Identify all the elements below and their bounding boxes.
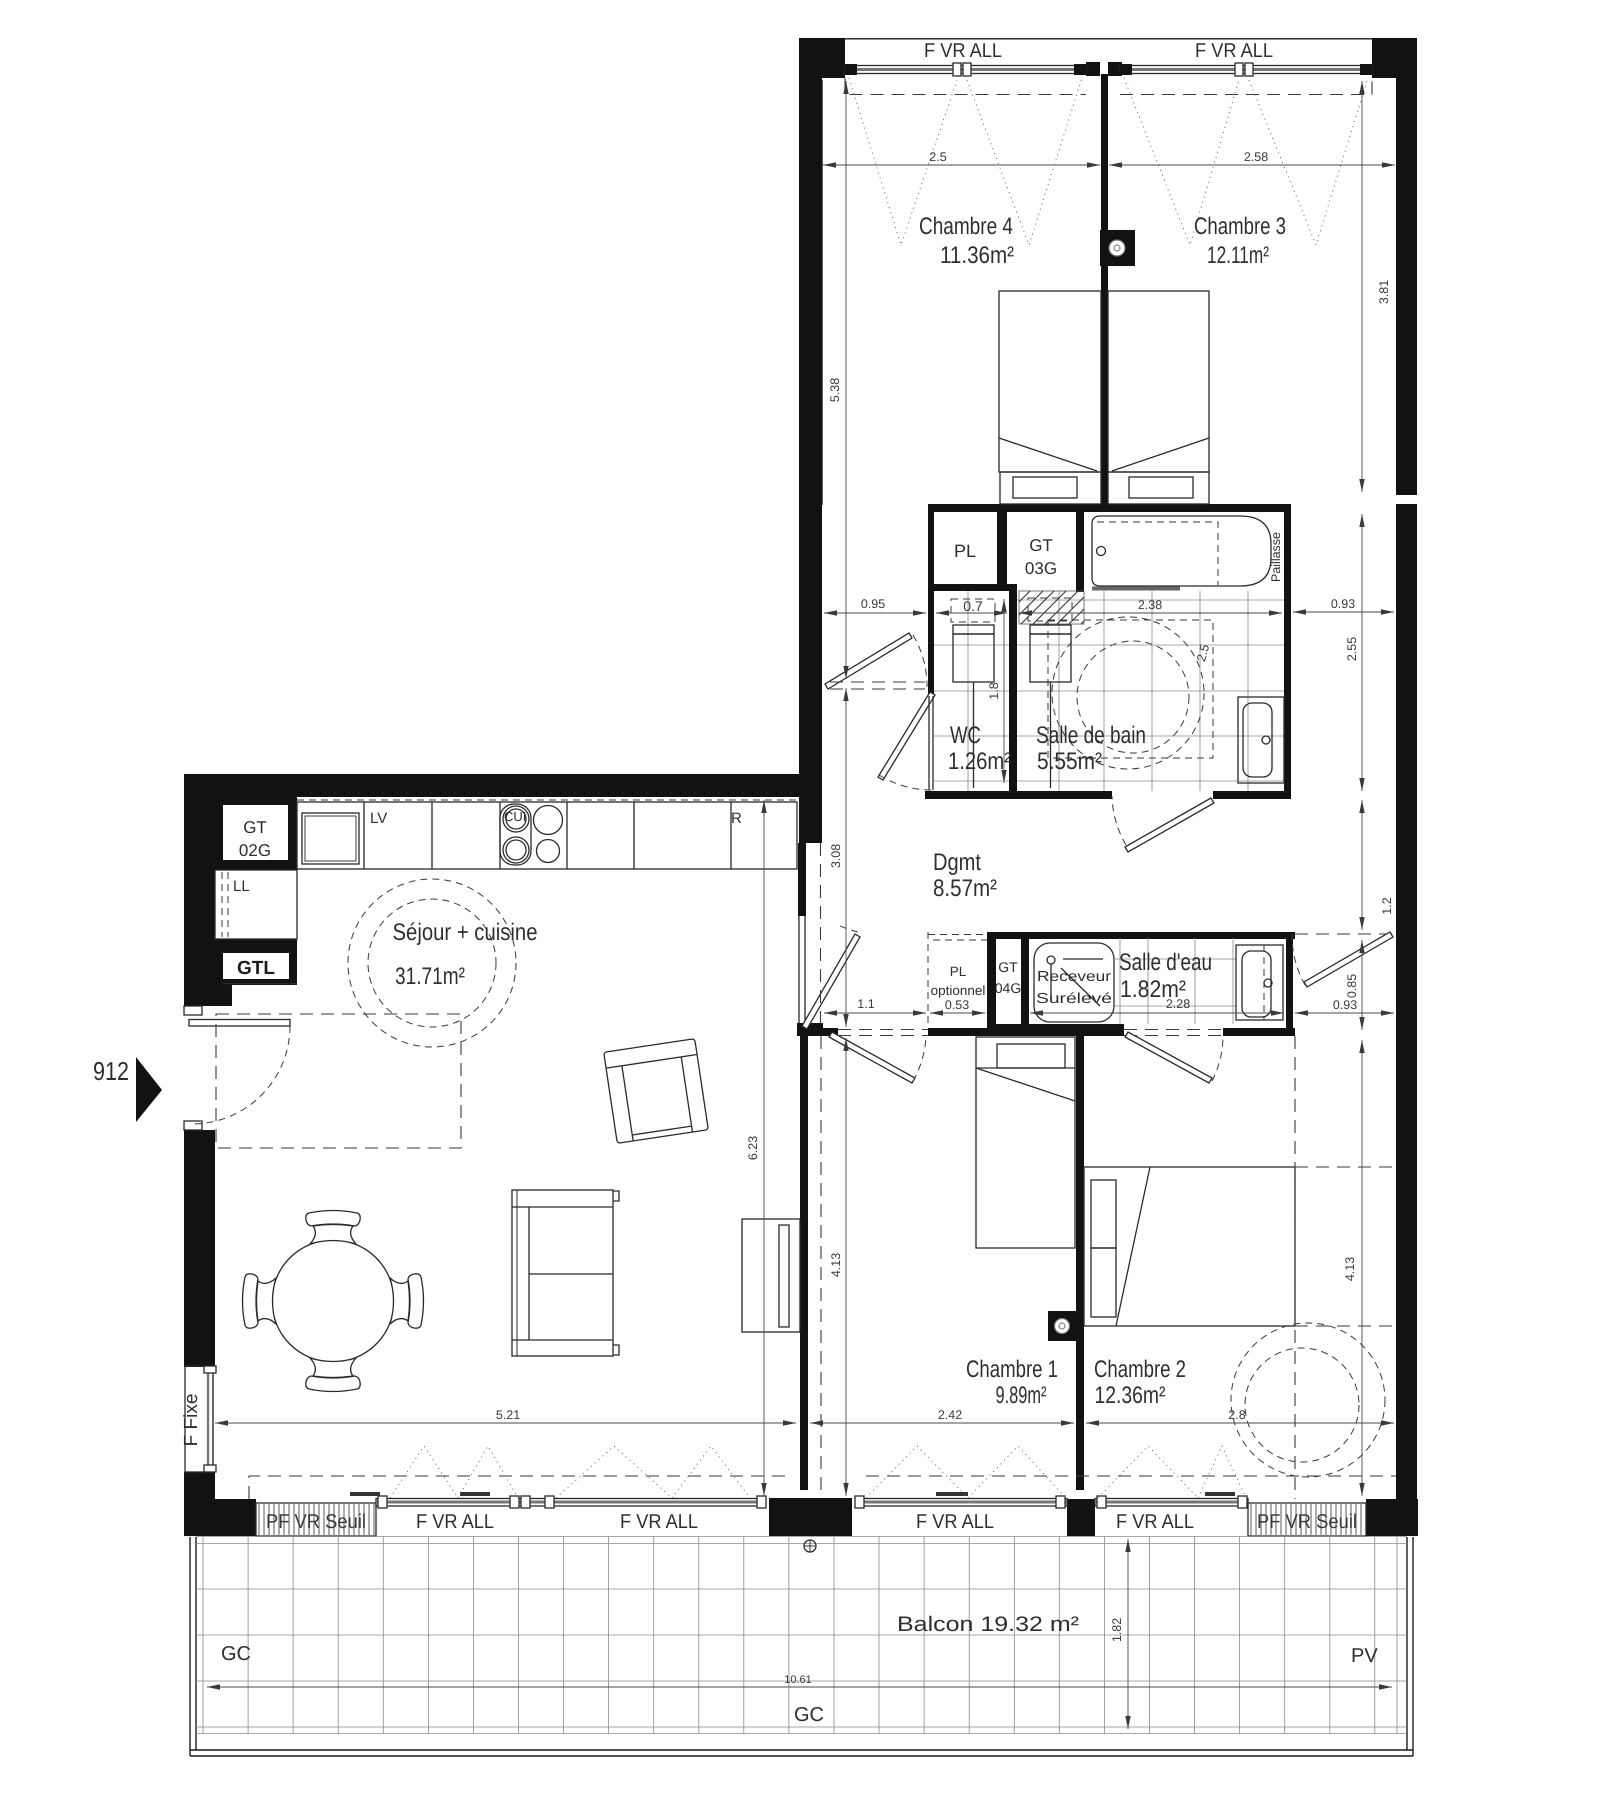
svg-text:GC: GC bbox=[794, 1704, 824, 1726]
svg-text:2.42: 2.42 bbox=[938, 1408, 962, 1422]
svg-text:LV: LV bbox=[370, 810, 387, 827]
svg-text:Paillasse: Paillasse bbox=[1269, 532, 1283, 582]
svg-text:F VR ALL: F VR ALL bbox=[924, 40, 1002, 62]
svg-text:12.11m²: 12.11m² bbox=[1207, 242, 1269, 269]
svg-text:8.57m²: 8.57m² bbox=[933, 875, 997, 902]
svg-text:GT: GT bbox=[1029, 536, 1053, 555]
svg-text:4.13: 4.13 bbox=[1343, 1257, 1357, 1281]
svg-text:PL: PL bbox=[950, 964, 967, 979]
svg-text:Receveur: Receveur bbox=[1037, 969, 1111, 985]
svg-text:Salle d'eau: Salle d'eau bbox=[1119, 949, 1212, 976]
svg-text:optionnel: optionnel bbox=[931, 983, 986, 998]
svg-text:Chambre 4: Chambre 4 bbox=[919, 213, 1013, 240]
svg-text:04G: 04G bbox=[995, 980, 1021, 996]
svg-text:3.08: 3.08 bbox=[829, 844, 843, 868]
svg-text:PL: PL bbox=[954, 541, 976, 561]
svg-text:6.23: 6.23 bbox=[746, 1136, 760, 1160]
svg-text:PF VR Seuil: PF VR Seuil bbox=[1257, 1511, 1357, 1533]
svg-text:0.93: 0.93 bbox=[1333, 998, 1357, 1012]
svg-text:R: R bbox=[731, 810, 742, 827]
svg-text:Salle de bain: Salle de bain bbox=[1036, 722, 1146, 749]
svg-text:10.61: 10.61 bbox=[784, 1674, 812, 1686]
svg-text:Chambre 1: Chambre 1 bbox=[966, 1356, 1058, 1383]
svg-text:4.13: 4.13 bbox=[829, 1253, 843, 1277]
svg-text:5.38: 5.38 bbox=[828, 378, 842, 402]
svg-text:Surélevé: Surélevé bbox=[1036, 991, 1112, 1007]
svg-text:LL: LL bbox=[233, 878, 250, 895]
svg-text:2.58: 2.58 bbox=[1244, 150, 1268, 164]
svg-text:GTL: GTL bbox=[237, 958, 275, 979]
svg-text:F Fixe: F Fixe bbox=[181, 1394, 202, 1447]
svg-text:F VR ALL: F VR ALL bbox=[620, 1511, 698, 1533]
svg-text:0.53: 0.53 bbox=[945, 998, 969, 1012]
svg-text:0.7: 0.7 bbox=[963, 598, 983, 614]
svg-text:GT: GT bbox=[998, 959, 1018, 975]
svg-text:Chambre 2: Chambre 2 bbox=[1094, 1356, 1186, 1383]
svg-text:3.81: 3.81 bbox=[1377, 280, 1391, 304]
svg-text:F VR ALL: F VR ALL bbox=[416, 1511, 494, 1533]
svg-text:0.95: 0.95 bbox=[861, 597, 885, 611]
svg-text:F VR ALL: F VR ALL bbox=[916, 1511, 994, 1533]
svg-text:912: 912 bbox=[93, 1056, 129, 1086]
svg-text:0.85: 0.85 bbox=[1345, 974, 1359, 998]
svg-text:1.8: 1.8 bbox=[987, 682, 1001, 699]
svg-text:02G: 02G bbox=[239, 841, 271, 860]
svg-text:F VR ALL: F VR ALL bbox=[1116, 1511, 1194, 1533]
svg-text:Séjour + cuisine: Séjour + cuisine bbox=[393, 919, 538, 946]
svg-text:1.82: 1.82 bbox=[1110, 1618, 1124, 1642]
svg-text:2.55: 2.55 bbox=[1345, 637, 1359, 661]
svg-text:5.21: 5.21 bbox=[496, 1408, 520, 1422]
svg-text:F VR ALL: F VR ALL bbox=[1195, 40, 1273, 62]
svg-text:GT: GT bbox=[243, 818, 267, 837]
svg-text:CUI: CUI bbox=[504, 809, 526, 824]
svg-text:Balcon 19.32 m²: Balcon 19.32 m² bbox=[897, 1613, 1079, 1636]
svg-text:WC: WC bbox=[950, 722, 981, 749]
svg-text:2.38: 2.38 bbox=[1138, 598, 1162, 612]
svg-text:PV: PV bbox=[1351, 1645, 1378, 1667]
svg-text:5.55m²: 5.55m² bbox=[1037, 748, 1102, 775]
svg-text:12.36m²: 12.36m² bbox=[1095, 1382, 1166, 1409]
svg-text:1.2: 1.2 bbox=[1380, 897, 1394, 914]
svg-text:Dgmt: Dgmt bbox=[933, 849, 981, 876]
svg-text:2.28: 2.28 bbox=[1166, 997, 1190, 1011]
svg-text:31.71m²: 31.71m² bbox=[395, 963, 465, 990]
svg-text:0.93: 0.93 bbox=[1331, 597, 1355, 611]
svg-text:GC: GC bbox=[221, 1643, 251, 1665]
svg-text:1.26m²: 1.26m² bbox=[948, 748, 1011, 775]
svg-text:2.5: 2.5 bbox=[929, 150, 946, 164]
svg-text:Chambre 3: Chambre 3 bbox=[1194, 213, 1286, 240]
svg-text:03G: 03G bbox=[1025, 559, 1057, 578]
svg-text:11.36m²: 11.36m² bbox=[940, 242, 1014, 269]
svg-text:9.89m²: 9.89m² bbox=[996, 1382, 1047, 1409]
svg-text:1.1: 1.1 bbox=[857, 997, 874, 1011]
svg-text:2.8: 2.8 bbox=[1228, 1408, 1245, 1422]
svg-text:PF VR Seuil: PF VR Seuil bbox=[266, 1511, 366, 1533]
